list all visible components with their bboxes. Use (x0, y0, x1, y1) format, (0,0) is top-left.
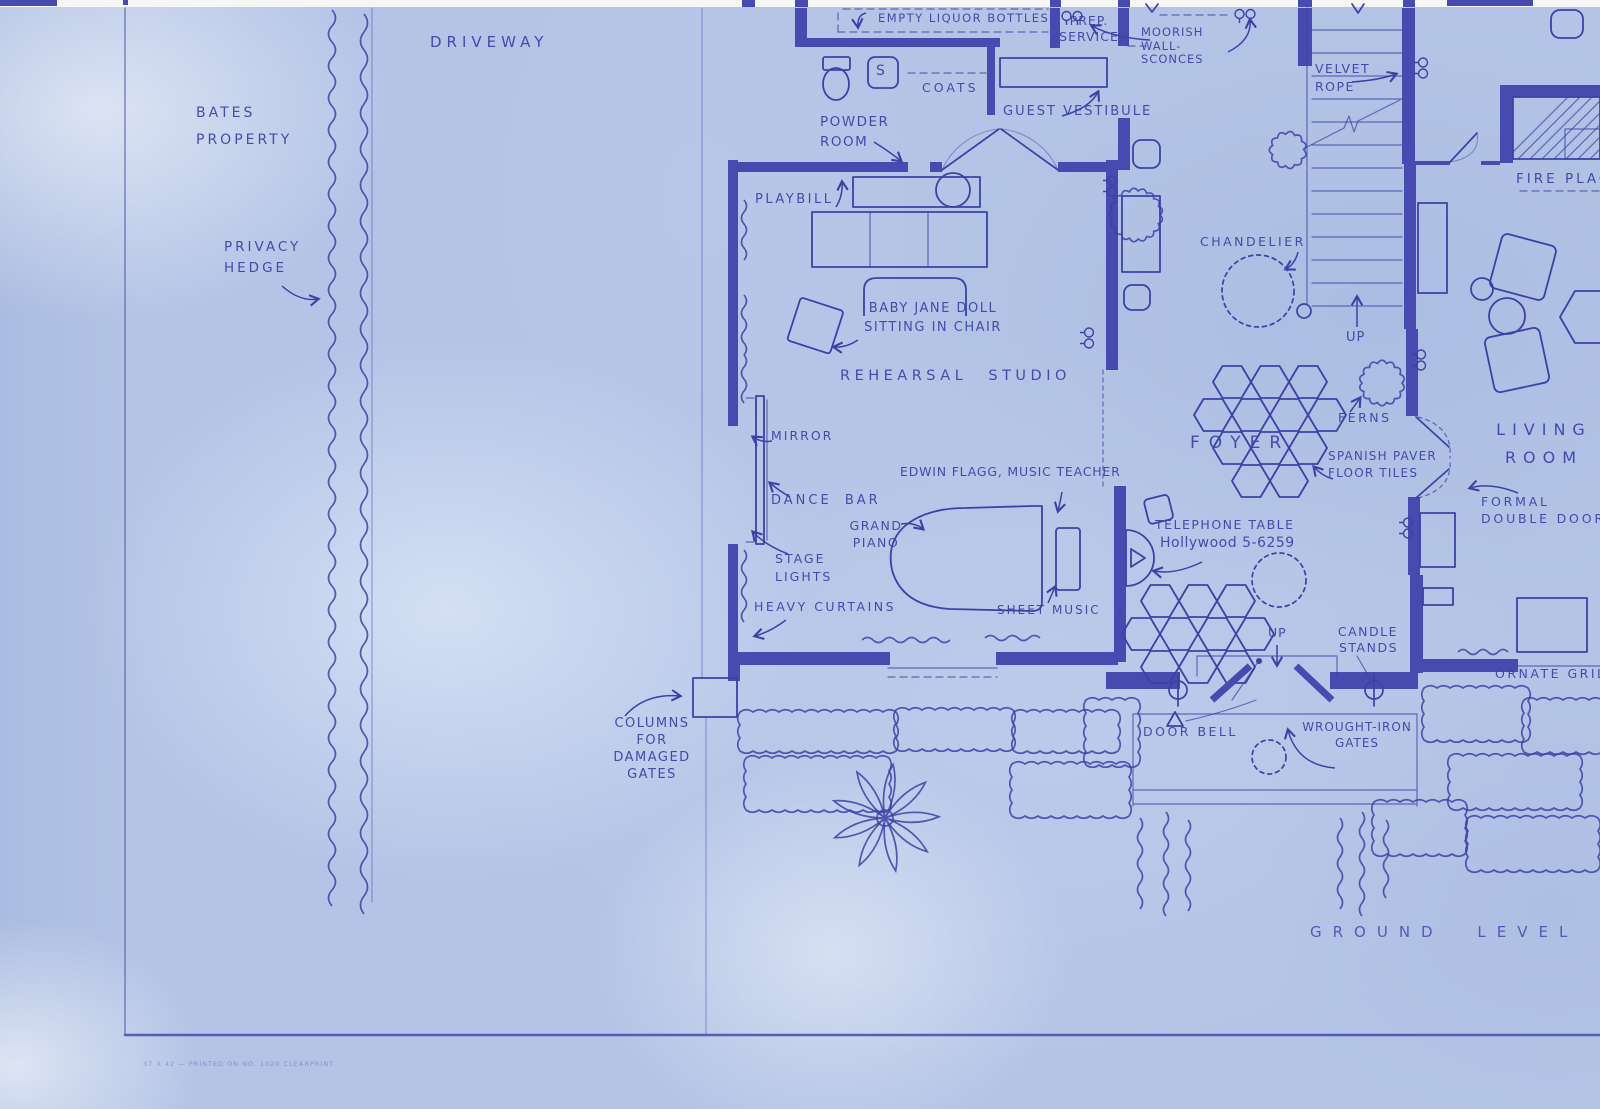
door-mat (1252, 740, 1286, 774)
label-dance-bar: DANCE BAR (771, 492, 881, 510)
label-mirror: MIRROR (771, 428, 833, 445)
label-telephone-table: TELEPHONE TABLE (1155, 517, 1295, 534)
gate-column (693, 678, 737, 717)
label-ground-level: GROUND LEVEL (1310, 922, 1578, 942)
planter (1517, 598, 1587, 652)
console-table (1418, 203, 1447, 293)
label-ornate-grille: ORNATE GRILLE (1495, 666, 1600, 683)
label-empty-liquor-bottles: EMPTY LIQUOR BOTTLES (878, 11, 1049, 27)
label-up-entry: UP (1268, 625, 1287, 642)
label-sheet-music: SHEET MUSIC (997, 602, 1101, 618)
label-telephone-number: Hollywood 5-6259 (1160, 534, 1295, 553)
toilet-bowl (823, 68, 849, 100)
label-moorish-wall-sconces: MOORISH WALL- SCONCES (1141, 26, 1204, 67)
label-formal-double-doors: FORMAL DOUBLE DOORS (1481, 494, 1600, 528)
piano-bench (1056, 528, 1080, 590)
label-grand-piano: GRAND PIANO (845, 518, 907, 552)
label-living-room: LIVING ROOM (1496, 416, 1592, 472)
label-door-bell: DOOR BELL (1143, 724, 1238, 741)
label-chandelier: CHANDELIER (1200, 234, 1306, 251)
ottoman (1551, 10, 1583, 38)
side-table (1471, 278, 1493, 300)
hex-table (1560, 291, 1600, 343)
blueprint-sheet: DRIVEWAY BATES PROPERTY PRIVACY HEDGE EM… (0, 0, 1600, 1109)
planter (1423, 588, 1453, 605)
sideboard (853, 177, 980, 207)
walls (728, 8, 1600, 689)
mirror-panel (756, 396, 764, 544)
label-driveway: DRIVEWAY (430, 32, 548, 52)
sofa (812, 212, 987, 267)
label-powder-room: POWDER ROOM (820, 112, 889, 153)
label-columns-for-damaged-gates: COLUMNS FOR DAMAGED GATES (604, 716, 700, 784)
label-playbill: PLAYBILL (755, 191, 833, 209)
label-bates-property: BATES PROPERTY (196, 100, 292, 153)
privacy-hedge (329, 10, 368, 914)
label-stage-lights: STAGE LIGHTS (775, 550, 832, 586)
label-rehearsal-studio: REHEARSAL STUDIO (840, 367, 1071, 387)
label-fireplace: FIRE PLACE (1516, 170, 1600, 188)
round-object (936, 173, 970, 207)
label-privacy-hedge: PRIVACY HEDGE (224, 237, 301, 279)
staircase (1297, 4, 1402, 318)
label-prep-service: PREP. SERVICE (1056, 13, 1122, 44)
label-coats: COATS (922, 80, 979, 97)
label-heavy-curtains: HEAVY CURTAINS (754, 599, 896, 616)
round-table (1489, 298, 1525, 334)
label-guest-vestibule: GUEST VESTIBULE (1003, 103, 1152, 121)
label-edwin-flagg: EDWIN FLAGG, MUSIC TEACHER (900, 464, 1121, 481)
telephone-icon (1131, 549, 1145, 567)
chandelier-circle (1222, 255, 1294, 327)
label-up-stairs: UP (1346, 329, 1365, 347)
label-wrought-iron-gates: WROUGHT-IRON GATES (1296, 720, 1418, 751)
palm-plant (834, 765, 939, 871)
vestibule-counter (1000, 58, 1107, 87)
label-foyer: FOYER (1190, 432, 1290, 455)
label-sink-s: S (876, 62, 887, 81)
label-spanish-paver: SPANISH PAVER FLOOR TILES (1328, 448, 1437, 483)
console-table (1420, 513, 1455, 567)
hall-table (1133, 140, 1160, 168)
label-candle-stands: CANDLE STANDS (1330, 624, 1398, 657)
grand-piano (891, 506, 1042, 611)
armchair (1484, 327, 1550, 393)
label-baby-jane-doll: BABY JANE DOLL SITTING IN CHAIR (818, 300, 1048, 338)
armchair (1489, 233, 1558, 302)
label-ferns: FERNS (1338, 410, 1392, 427)
label-velvet-rope: VELVET ROPE (1315, 60, 1370, 95)
top-edge-strip (0, 0, 1600, 7)
label-print-line: 37 X 42 — PRINTED ON NO. 1020 CLEARPRINT (143, 1060, 334, 1069)
foyer-stool (1124, 285, 1150, 310)
